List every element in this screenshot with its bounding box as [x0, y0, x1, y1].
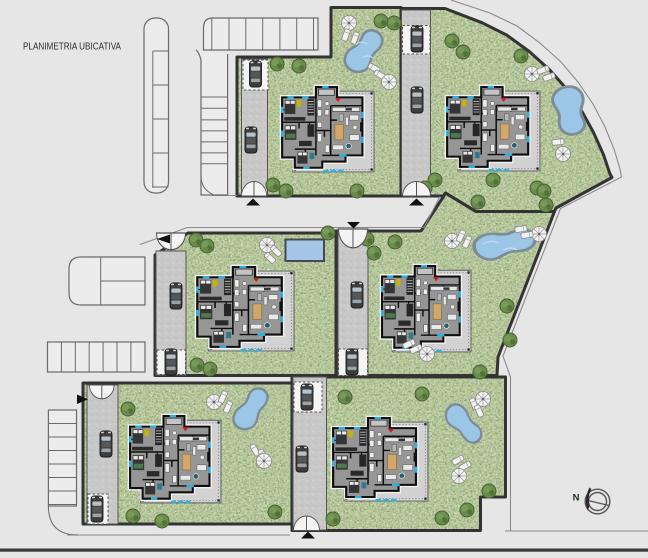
- svg-text:PLANIMETRIA UBICATIVA: PLANIMETRIA UBICATIVA: [23, 41, 121, 53]
- svg-text:N: N: [573, 493, 580, 504]
